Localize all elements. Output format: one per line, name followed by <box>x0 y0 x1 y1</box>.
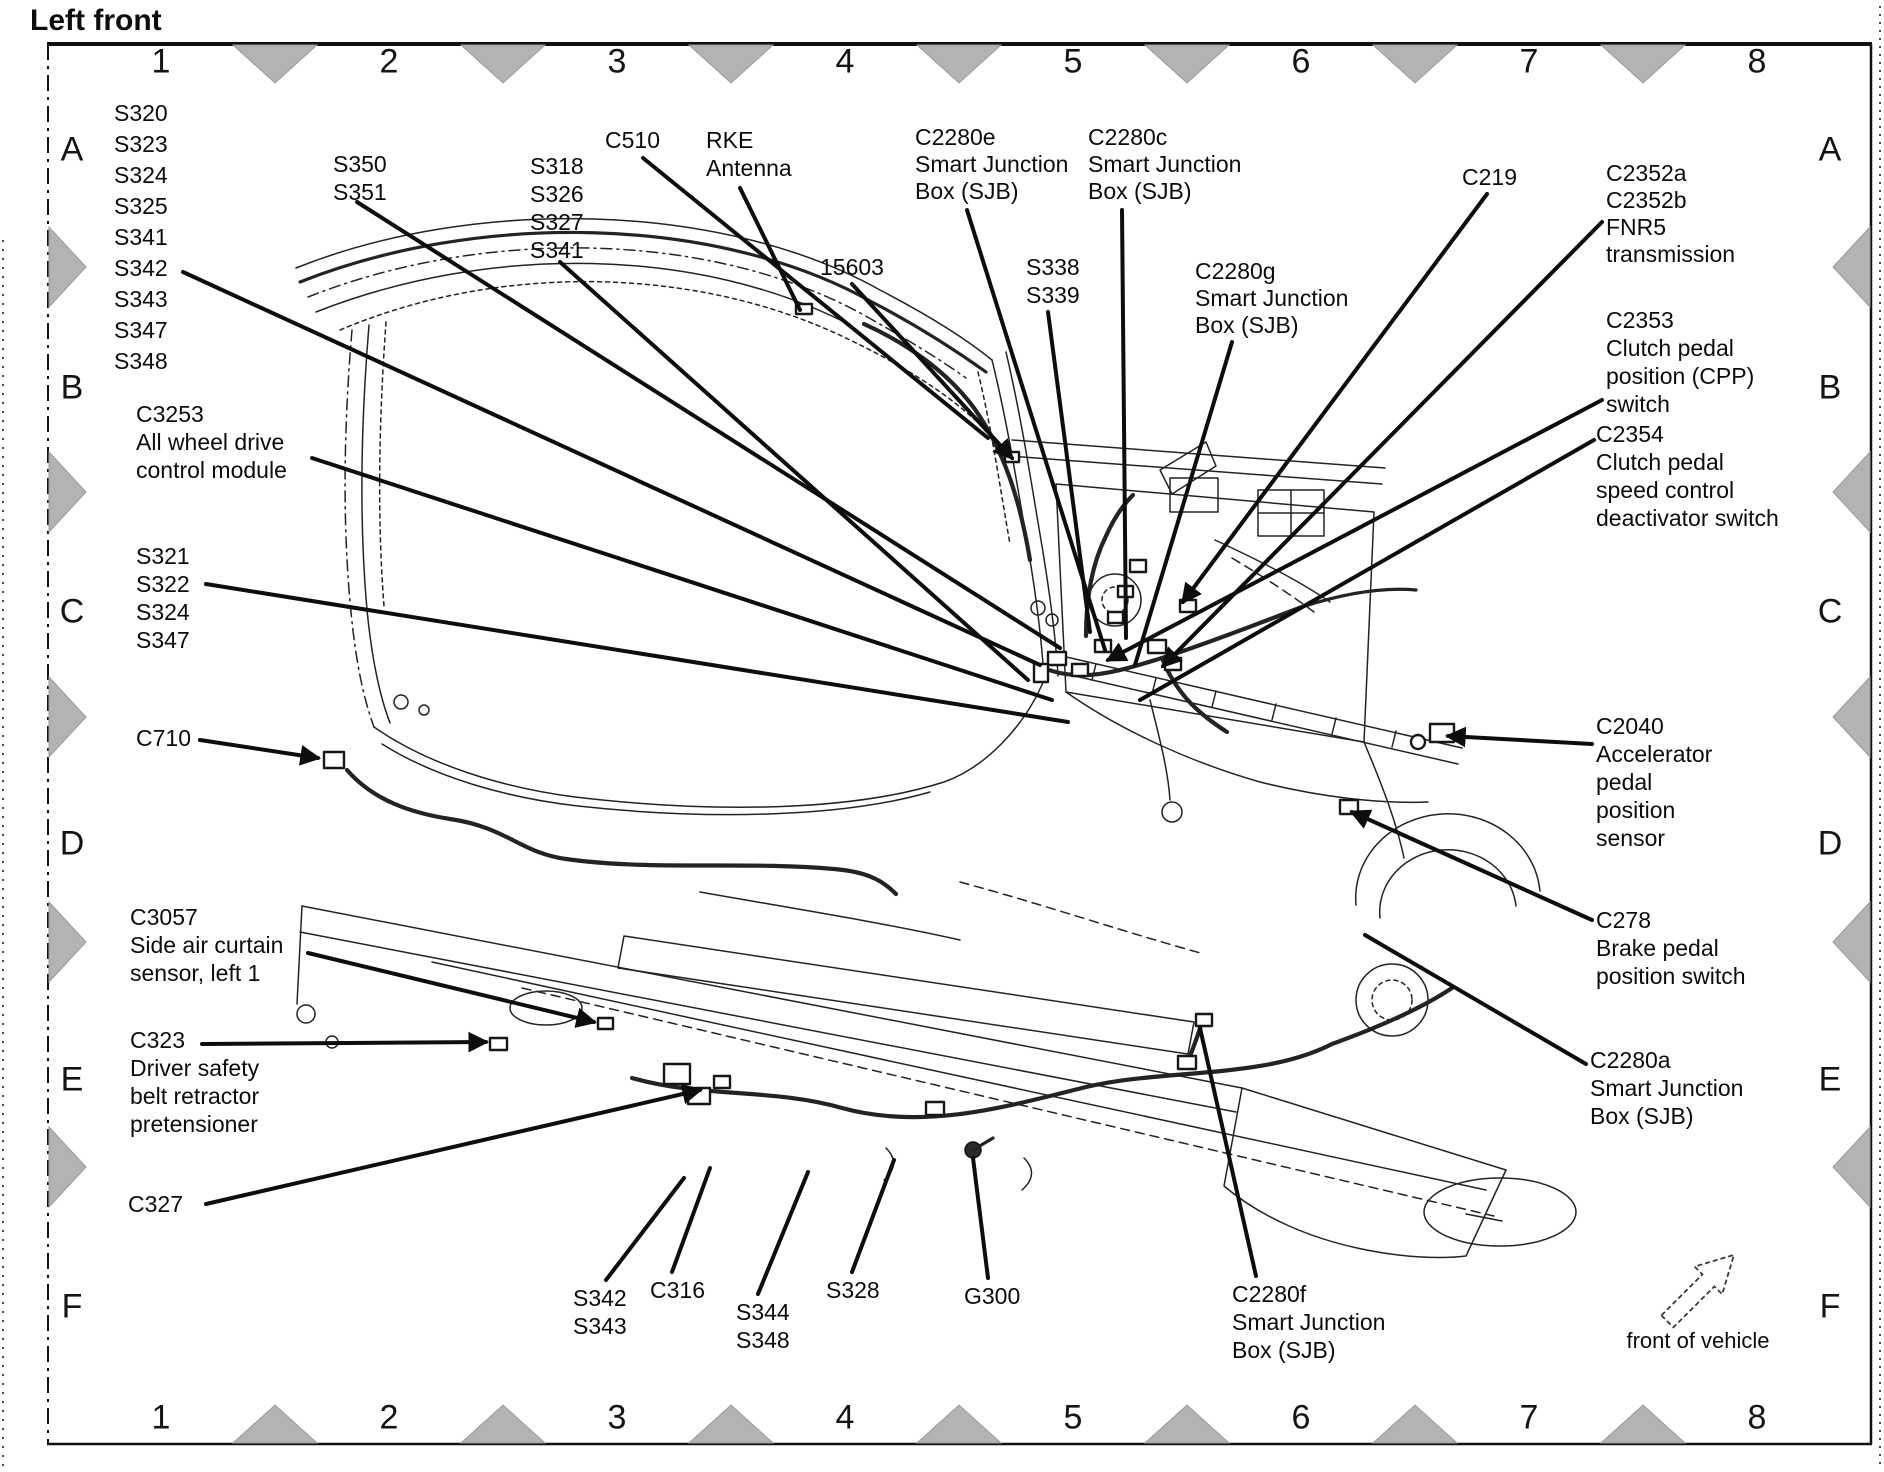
leader-c2353-cpp <box>1108 400 1602 660</box>
tick-triangle-bottom <box>689 1405 773 1443</box>
tick-triangle-right <box>1833 227 1870 307</box>
grid-col-bottom-6: 6 <box>1292 1399 1311 1438</box>
callout-line: S351 <box>333 178 387 206</box>
callout-line: belt retractor <box>130 1082 259 1110</box>
tick-triangle-top <box>1373 45 1457 83</box>
callout-s344-s348: S344S348 <box>736 1298 790 1354</box>
callout-line: position switch <box>1596 962 1746 990</box>
leader-c278-bpp-switch <box>1352 812 1592 920</box>
callout-line: Clutch pedal <box>1596 448 1779 476</box>
tick-triangle-bottom <box>1601 1405 1685 1443</box>
callout-line: sensor, left 1 <box>130 959 283 987</box>
callout-line: S339 <box>1026 281 1080 309</box>
callout-line: C510 <box>605 126 660 154</box>
callout-line: Box (SJB) <box>1590 1102 1743 1130</box>
callout-line: S325 <box>114 191 168 222</box>
grid-col-bottom-7: 7 <box>1520 1399 1539 1438</box>
callout-c710: C710 <box>136 724 191 752</box>
callout-line: C2280c <box>1088 124 1241 151</box>
grid-row-left-A: A <box>61 131 84 170</box>
callout-s321-group: S321S322S324S347 <box>136 542 190 654</box>
callout-splice-group-a1: S320S323S324S325S341S342S343S347S348 <box>114 98 168 377</box>
grid-col-bottom-4: 4 <box>836 1399 855 1438</box>
callout-line: Box (SJB) <box>1088 178 1241 205</box>
callout-line: FNR5 <box>1606 214 1735 241</box>
grid-row-left-C: C <box>60 593 85 632</box>
callout-line: Brake pedal <box>1596 934 1746 962</box>
grid-col-top-1: 1 <box>152 43 171 82</box>
grid-col-bottom-2: 2 <box>380 1399 399 1438</box>
front-of-vehicle-arrow <box>1661 1255 1734 1328</box>
callout-n15603: 15603 <box>820 253 884 281</box>
callout-line: C323 <box>130 1026 259 1054</box>
callout-line: C2353 <box>1606 306 1754 334</box>
tick-triangle-top <box>689 45 773 83</box>
callout-c2280e: C2280eSmart JunctionBox (SJB) <box>915 124 1068 205</box>
callout-c2352-fnr5: C2352aC2352bFNR5transmission <box>1606 160 1735 268</box>
callout-line: C3057 <box>130 903 283 931</box>
callout-c278-bpp-switch: C278Brake pedalposition switch <box>1596 906 1746 990</box>
callout-line: C278 <box>1596 906 1746 934</box>
leader-c2040-app-sensor <box>1448 736 1592 744</box>
grid-row-right-A: A <box>1819 131 1842 170</box>
callout-line: pedal <box>1596 768 1712 796</box>
leader-s338-s339 <box>1048 312 1090 632</box>
callout-line: switch <box>1606 390 1754 418</box>
callout-line: S323 <box>114 129 168 160</box>
callout-line: S327 <box>530 208 584 236</box>
callout-line: RKE <box>706 126 792 154</box>
callout-s318-group: S318S326S327S341 <box>530 152 584 264</box>
callout-line: Smart Junction <box>1088 151 1241 178</box>
leader-c2280f <box>1200 1028 1256 1276</box>
callout-line: S347 <box>114 315 168 346</box>
callout-line: S322 <box>136 570 190 598</box>
callout-c219: C219 <box>1462 163 1517 191</box>
callout-line: Box (SJB) <box>915 178 1068 205</box>
callout-c316: C316 <box>650 1276 705 1304</box>
callout-line: transmission <box>1606 241 1735 268</box>
tick-triangle-right <box>1833 677 1870 757</box>
tick-triangle-bottom <box>1145 1405 1229 1443</box>
grid-col-top-8: 8 <box>1748 43 1767 82</box>
callout-line: Smart Junction <box>915 151 1068 178</box>
callout-c510: C510 <box>605 126 660 154</box>
callout-line: S347 <box>136 626 190 654</box>
callout-c2280c: C2280cSmart JunctionBox (SJB) <box>1088 124 1241 205</box>
grid-col-top-3: 3 <box>608 43 627 82</box>
callout-line: C2280e <box>915 124 1068 151</box>
callout-line: deactivator switch <box>1596 504 1779 532</box>
tick-triangle-top <box>1601 45 1685 83</box>
callout-line: sensor <box>1596 824 1712 852</box>
tick-triangle-left <box>49 677 86 757</box>
callout-line: C219 <box>1462 163 1517 191</box>
callout-line: Smart Junction <box>1590 1074 1743 1102</box>
page: Left front <box>0 0 1884 1472</box>
callout-line: C710 <box>136 724 191 752</box>
callout-line: S320 <box>114 98 168 129</box>
tick-triangle-left <box>49 227 86 307</box>
callout-line: S348 <box>114 346 168 377</box>
leader-s328 <box>852 1160 894 1272</box>
callout-line: C2280f <box>1232 1280 1385 1308</box>
callout-s338-s339: S338S339 <box>1026 253 1080 309</box>
grid-col-bottom-8: 8 <box>1748 1399 1767 1438</box>
callout-line: Clutch pedal <box>1606 334 1754 362</box>
callout-line: S324 <box>114 160 168 191</box>
callout-line: pretensioner <box>130 1110 259 1138</box>
callout-line: S342 <box>114 253 168 284</box>
callout-rke-antenna: RKEAntenna <box>706 126 792 182</box>
leader-c3253-awd <box>312 458 1052 700</box>
tick-triangle-top <box>461 45 545 83</box>
grid-row-right-C: C <box>1818 593 1843 632</box>
tick-triangle-bottom <box>1373 1405 1457 1443</box>
tick-triangle-top <box>917 45 1001 83</box>
callout-c2280f: C2280fSmart JunctionBox (SJB) <box>1232 1280 1385 1364</box>
grid-row-right-F: F <box>1820 1288 1841 1327</box>
callout-line: C316 <box>650 1276 705 1304</box>
callout-line: S350 <box>333 150 387 178</box>
callout-line: S338 <box>1026 253 1080 281</box>
callout-line: S341 <box>114 222 168 253</box>
callout-c2280a: C2280aSmart JunctionBox (SJB) <box>1590 1046 1743 1130</box>
leader-c2280a <box>1365 935 1586 1064</box>
callout-line: C2352b <box>1606 187 1735 214</box>
grid-col-bottom-5: 5 <box>1064 1399 1083 1438</box>
tick-triangle-left <box>49 452 86 532</box>
tick-triangle-right <box>1833 452 1870 532</box>
callout-c3253-awd: C3253All wheel drivecontrol module <box>136 400 287 484</box>
leader-lines <box>183 158 1602 1294</box>
tick-triangle-bottom <box>233 1405 317 1443</box>
leader-c710 <box>200 740 318 758</box>
callout-line: C2354 <box>1596 420 1779 448</box>
front-of-vehicle-label: front of vehicle <box>1626 1328 1769 1354</box>
tick-triangle-bottom <box>461 1405 545 1443</box>
callout-line: S324 <box>136 598 190 626</box>
callout-line: position <box>1596 796 1712 824</box>
tick-triangle-top <box>1145 45 1229 83</box>
tick-triangle-bottom <box>917 1405 1001 1443</box>
callout-line: C327 <box>128 1190 183 1218</box>
grid-col-bottom-3: 3 <box>608 1399 627 1438</box>
leader-n15603 <box>852 284 1012 458</box>
tick-triangle-top <box>233 45 317 83</box>
tick-triangle-right <box>1833 1127 1870 1207</box>
callout-line: S326 <box>530 180 584 208</box>
callout-line: Driver safety <box>130 1054 259 1082</box>
leader-s344-s348 <box>758 1172 808 1294</box>
grid-col-top-4: 4 <box>836 43 855 82</box>
callout-line: S321 <box>136 542 190 570</box>
grid-row-left-E: E <box>61 1061 84 1100</box>
callout-line: S344 <box>736 1298 790 1326</box>
callout-line: Box (SJB) <box>1195 312 1348 339</box>
grid-row-right-B: B <box>1819 369 1842 408</box>
callout-c323-pretensioner: C323Driver safetybelt retractorpretensio… <box>130 1026 259 1138</box>
callout-line: control module <box>136 456 287 484</box>
grid-col-bottom-1: 1 <box>152 1399 171 1438</box>
grid-col-top-2: 2 <box>380 43 399 82</box>
callout-line: S318 <box>530 152 584 180</box>
callout-line: S328 <box>826 1276 880 1304</box>
callout-line: Antenna <box>706 154 792 182</box>
leader-s321-group <box>206 584 1068 722</box>
callout-line: C2040 <box>1596 712 1712 740</box>
callout-line: C3253 <box>136 400 287 428</box>
callout-c2280g: C2280gSmart JunctionBox (SJB) <box>1195 258 1348 339</box>
callout-line: S342 <box>573 1284 627 1312</box>
leader-splice-group-a1 <box>183 272 1040 665</box>
callout-c2040-app-sensor: C2040Acceleratorpedalpositionsensor <box>1596 712 1712 852</box>
callout-line: S343 <box>573 1312 627 1340</box>
callout-line: Smart Junction <box>1232 1308 1385 1336</box>
callout-s350-s351: S350S351 <box>333 150 387 206</box>
callout-line: S341 <box>530 236 584 264</box>
callout-line: All wheel drive <box>136 428 287 456</box>
callout-line: speed control <box>1596 476 1779 504</box>
callout-line: C2280a <box>1590 1046 1743 1074</box>
callout-s328: S328 <box>826 1276 880 1304</box>
callout-line: C2280g <box>1195 258 1348 285</box>
callout-g300: G300 <box>964 1282 1020 1310</box>
leader-c2280c <box>1122 210 1126 638</box>
grid-col-top-7: 7 <box>1520 43 1539 82</box>
grid-row-right-E: E <box>1819 1061 1842 1100</box>
callout-line: Box (SJB) <box>1232 1336 1385 1364</box>
callout-line: position (CPP) <box>1606 362 1754 390</box>
grid-col-top-5: 5 <box>1064 43 1083 82</box>
leader-s342-s343 <box>606 1178 684 1280</box>
leader-g300 <box>973 1158 988 1278</box>
tick-triangle-right <box>1833 902 1870 982</box>
callout-s342-s343: S342S343 <box>573 1284 627 1340</box>
callout-line: G300 <box>964 1282 1020 1310</box>
leader-s350-s351 <box>357 202 1060 648</box>
callout-c327: C327 <box>128 1190 183 1218</box>
leader-c327 <box>206 1090 700 1204</box>
grid-row-left-D: D <box>60 825 85 864</box>
callout-line: S343 <box>114 284 168 315</box>
grid-row-left-F: F <box>62 1288 83 1327</box>
callout-line: C2352a <box>1606 160 1735 187</box>
tick-triangle-left <box>49 902 86 982</box>
grid-col-top-6: 6 <box>1292 43 1311 82</box>
callout-c2353-cpp: C2353Clutch pedalposition (CPP)switch <box>1606 306 1754 418</box>
callout-c2354-deactivator: C2354Clutch pedalspeed controldeactivato… <box>1596 420 1779 532</box>
callout-line: S348 <box>736 1326 790 1354</box>
callout-line: Smart Junction <box>1195 285 1348 312</box>
callout-line: Side air curtain <box>130 931 283 959</box>
callout-line: Accelerator <box>1596 740 1712 768</box>
tick-triangle-left <box>49 1127 86 1207</box>
grid-row-right-D: D <box>1818 825 1843 864</box>
callout-c3057-air-curtain: C3057Side air curtainsensor, left 1 <box>130 903 283 987</box>
grid-row-left-B: B <box>61 369 84 408</box>
callout-line: 15603 <box>820 253 884 281</box>
